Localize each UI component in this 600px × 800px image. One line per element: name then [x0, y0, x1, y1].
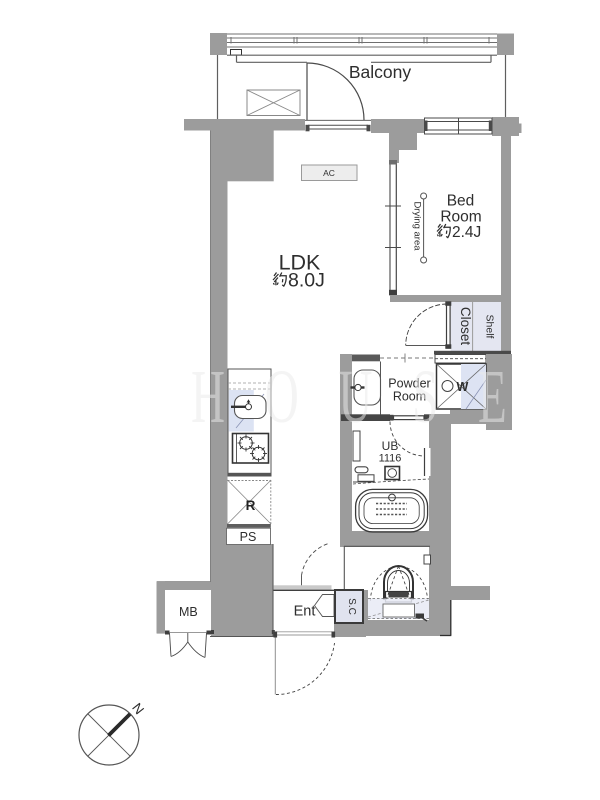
svg-text:8.0J: 8.0J — [288, 270, 325, 292]
svg-text:R: R — [246, 498, 256, 513]
svg-text:MB: MB — [179, 605, 198, 619]
svg-text:S.C: S.C — [346, 598, 357, 615]
svg-text:Room: Room — [440, 209, 481, 226]
svg-text:Shelf: Shelf — [484, 315, 496, 339]
svg-text:HOUSE: HOUSE — [191, 355, 546, 439]
svg-text:1116: 1116 — [379, 453, 402, 465]
svg-text:PS: PS — [240, 530, 257, 544]
svg-text:Ent: Ent — [294, 604, 316, 620]
svg-text:Closet: Closet — [458, 307, 473, 346]
svg-text:Balcony: Balcony — [349, 62, 412, 82]
svg-text:Drying area: Drying area — [412, 201, 423, 251]
svg-text:AC: AC — [323, 168, 335, 178]
svg-text:2.4J: 2.4J — [452, 224, 481, 241]
svg-text:Bed: Bed — [447, 193, 475, 210]
